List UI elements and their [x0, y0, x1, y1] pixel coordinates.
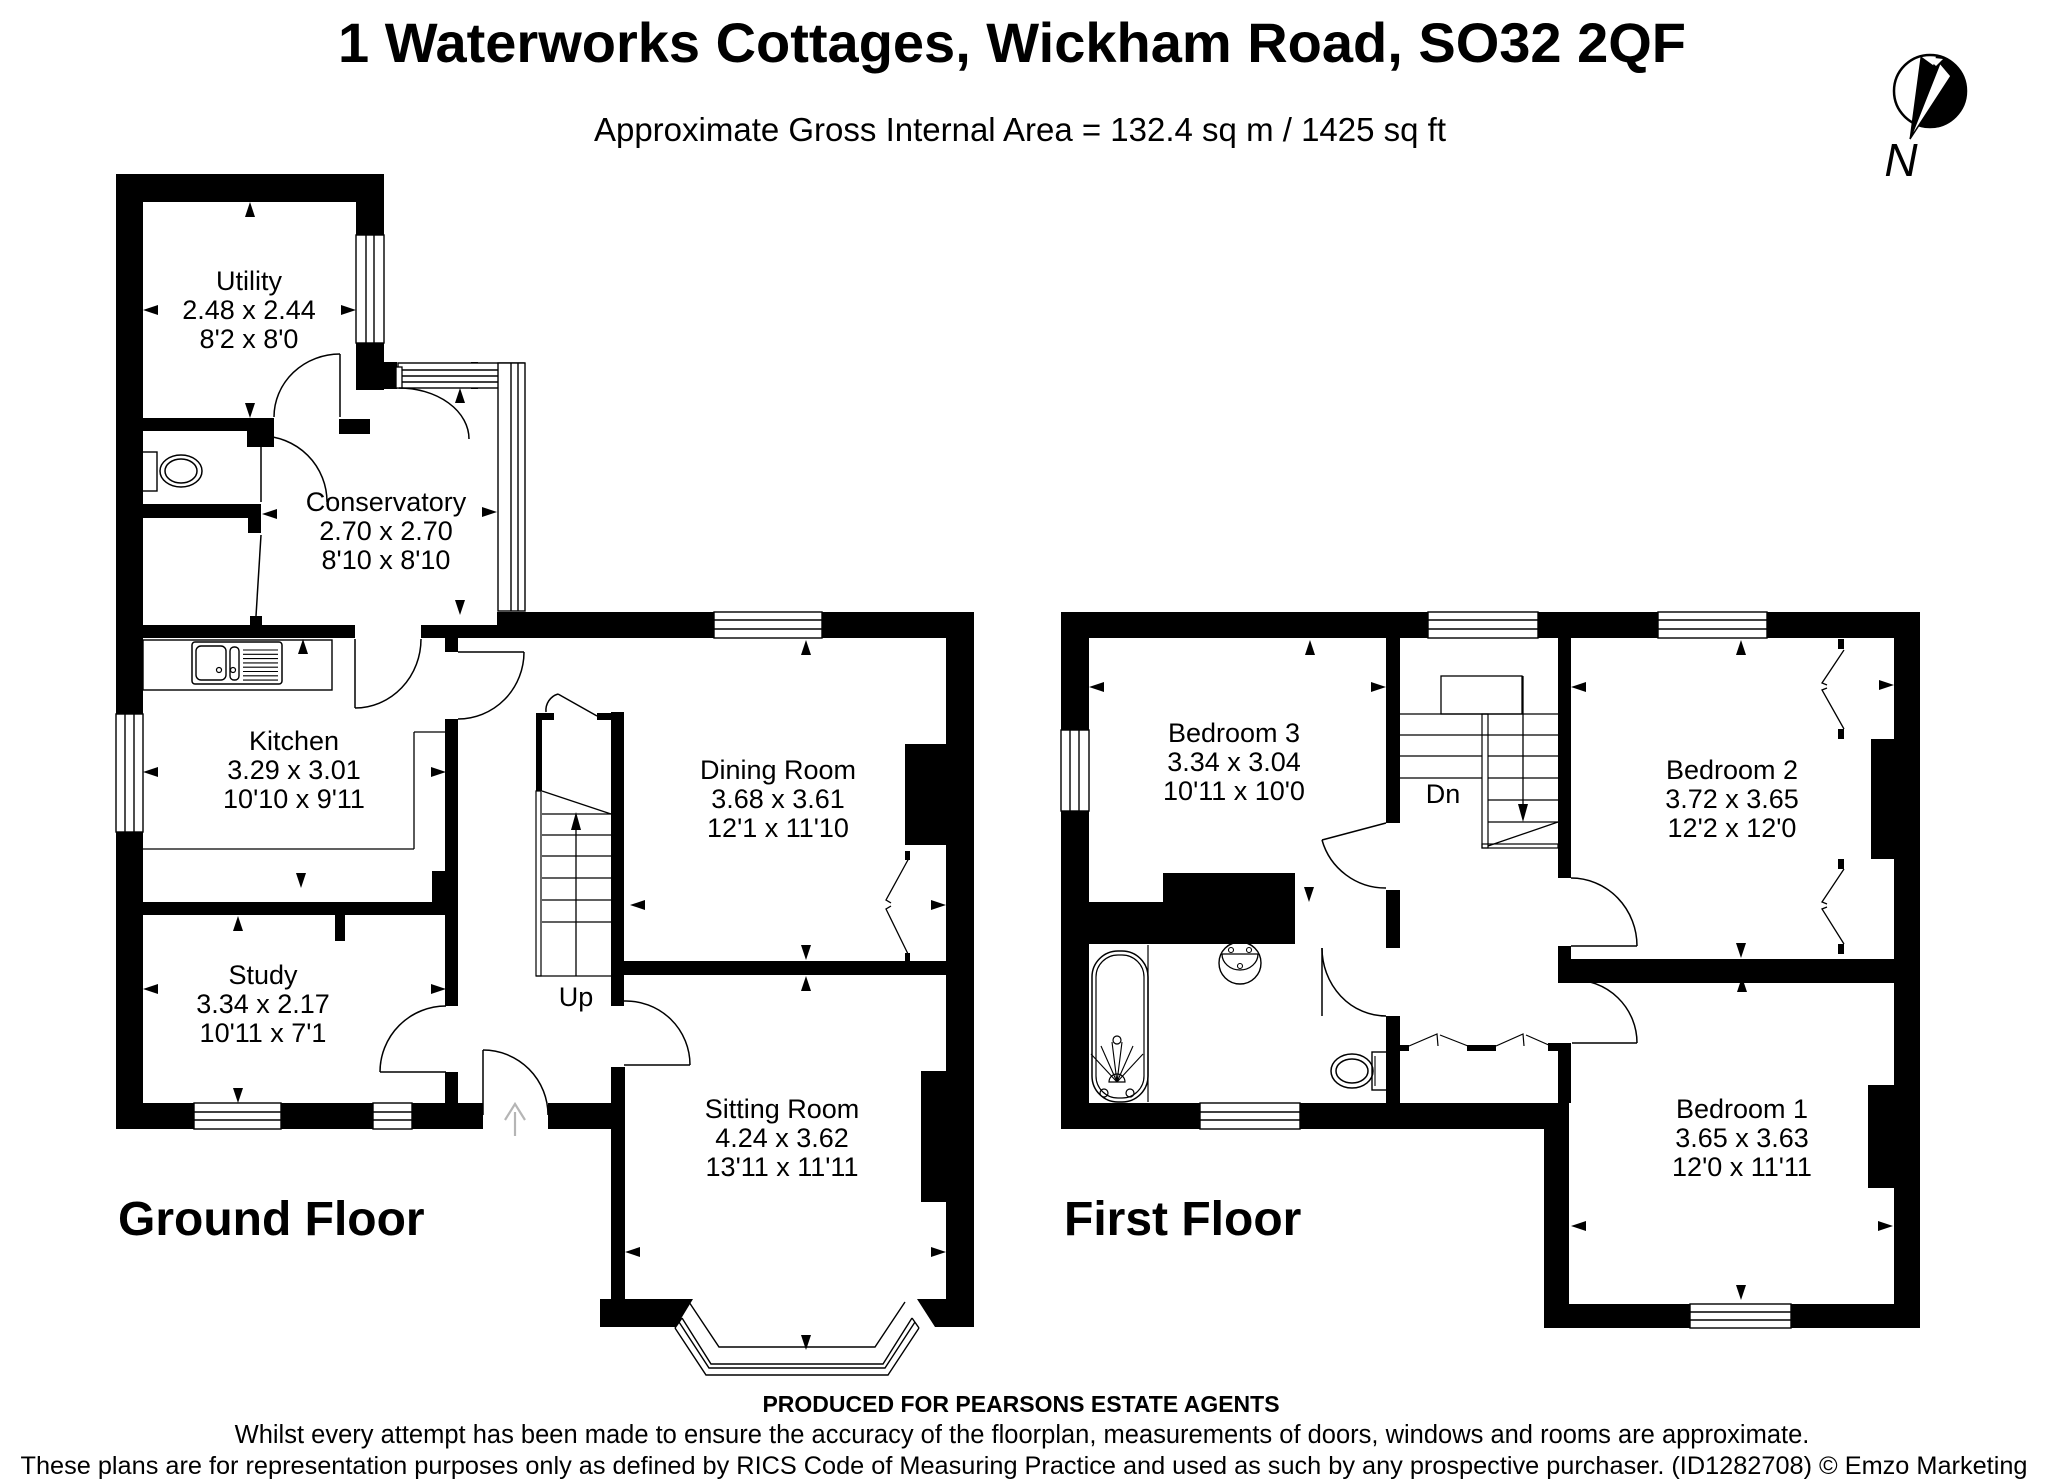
svg-text:12'0 x 11'11: 12'0 x 11'11	[1672, 1152, 1812, 1182]
svg-text:4.24 x 3.62: 4.24 x 3.62	[715, 1123, 849, 1153]
svg-text:Bedroom 3: Bedroom 3	[1168, 718, 1300, 748]
svg-text:10'11 x 10'0: 10'11 x 10'0	[1163, 776, 1305, 806]
svg-text:8'2 x 8'0: 8'2 x 8'0	[200, 324, 299, 354]
svg-text:Dn: Dn	[1426, 779, 1461, 809]
svg-text:Study: Study	[228, 960, 298, 990]
svg-text:Utility: Utility	[216, 266, 282, 296]
svg-text:12'2 x 12'0: 12'2 x 12'0	[1668, 813, 1797, 843]
svg-text:Whilst every attempt has been: Whilst every attempt has been made to en…	[235, 1421, 1810, 1449]
svg-text:Sitting Room: Sitting Room	[705, 1094, 860, 1124]
svg-text:These plans are for representa: These plans are for representation purpo…	[21, 1452, 2028, 1479]
svg-text:Bedroom 1: Bedroom 1	[1676, 1094, 1808, 1124]
svg-text:3.68 x 3.61: 3.68 x 3.61	[711, 784, 845, 814]
svg-text:10'10 x 9'11: 10'10 x 9'11	[223, 784, 365, 814]
svg-text:Ground Floor: Ground Floor	[118, 1193, 425, 1246]
svg-text:N: N	[1884, 134, 1918, 186]
svg-text:1 Waterworks Cottages, Wickham: 1 Waterworks Cottages, Wickham Road, SO3…	[338, 11, 1686, 74]
svg-text:10'11 x 7'1: 10'11 x 7'1	[200, 1018, 327, 1048]
svg-text:2.70 x 2.70: 2.70 x 2.70	[319, 516, 453, 546]
svg-text:Kitchen: Kitchen	[249, 726, 339, 756]
svg-text:3.34 x 3.04: 3.34 x 3.04	[1167, 747, 1301, 777]
svg-text:Dining Room: Dining Room	[700, 755, 856, 785]
svg-text:3.65 x 3.63: 3.65 x 3.63	[1675, 1123, 1809, 1153]
svg-text:PRODUCED FOR PEARSONS ESTATE A: PRODUCED FOR PEARSONS ESTATE AGENTS	[762, 1391, 1279, 1417]
svg-text:Approximate Gross Internal Are: Approximate Gross Internal Area = 132.4 …	[594, 111, 1446, 148]
svg-text:Conservatory: Conservatory	[306, 487, 467, 517]
svg-text:3.72 x 3.65: 3.72 x 3.65	[1665, 784, 1799, 814]
svg-text:2.48 x 2.44: 2.48 x 2.44	[182, 295, 316, 325]
svg-text:12'1 x 11'10: 12'1 x 11'10	[707, 813, 849, 843]
svg-text:3.29 x 3.01: 3.29 x 3.01	[227, 755, 361, 785]
svg-text:Up: Up	[559, 982, 594, 1012]
svg-text:First Floor: First Floor	[1064, 1193, 1301, 1246]
svg-text:3.34 x 2.17: 3.34 x 2.17	[196, 989, 330, 1019]
svg-text:13'11 x 11'11: 13'11 x 11'11	[706, 1152, 859, 1182]
svg-text:8'10 x 8'10: 8'10 x 8'10	[322, 545, 451, 575]
svg-text:Bedroom 2: Bedroom 2	[1666, 755, 1798, 785]
